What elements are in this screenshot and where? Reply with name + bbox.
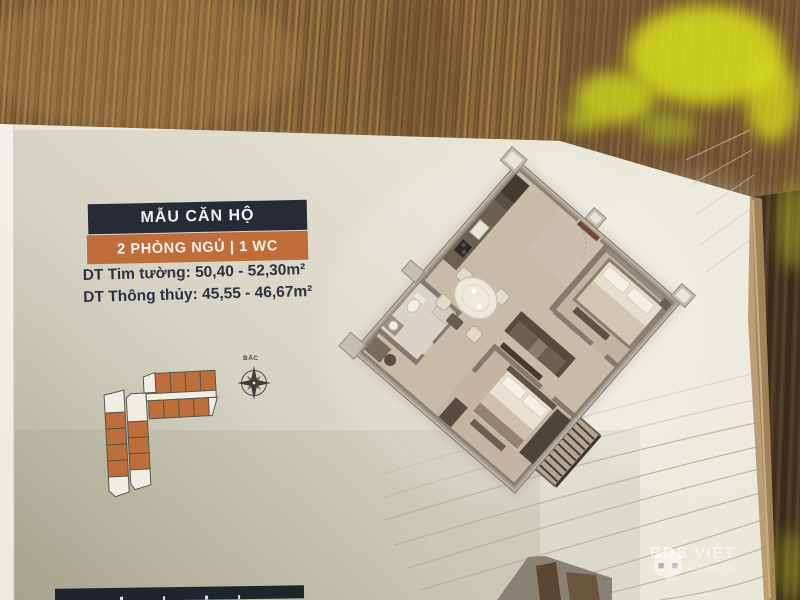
compass-north-label: BẮC [243, 355, 259, 362]
brochure-photo: MẪU CĂN HỘ 2 PHÒNG NGỦ | 1 WC DT Tim tườ… [0, 0, 800, 600]
area-net-value: 45,55 - 46,67m² [202, 283, 313, 303]
unit-type-label: 2 PHÒNG NGỦ | 1 WC [117, 238, 278, 257]
area-gross-label: DT Tim tường: [83, 264, 191, 284]
bdsviet-watermark: BDS VIỆT Đăng tin không cần đăng nhập [650, 545, 800, 572]
page-left-edge [0, 124, 14, 600]
next-section-header-partial [55, 585, 304, 600]
area-net-label: DT Thông thủy: [83, 286, 198, 306]
area-gross-value: 50,40 - 52,30m² [195, 261, 306, 281]
area-info: DT Tim tường: 50,40 - 52,30m² DT Thông t… [82, 259, 312, 309]
bdsviet-cube-logo-icon [650, 545, 686, 581]
model-header-box: MẪU CĂN HỘ [88, 200, 308, 235]
model-title: MẪU CĂN HỘ [140, 207, 254, 227]
